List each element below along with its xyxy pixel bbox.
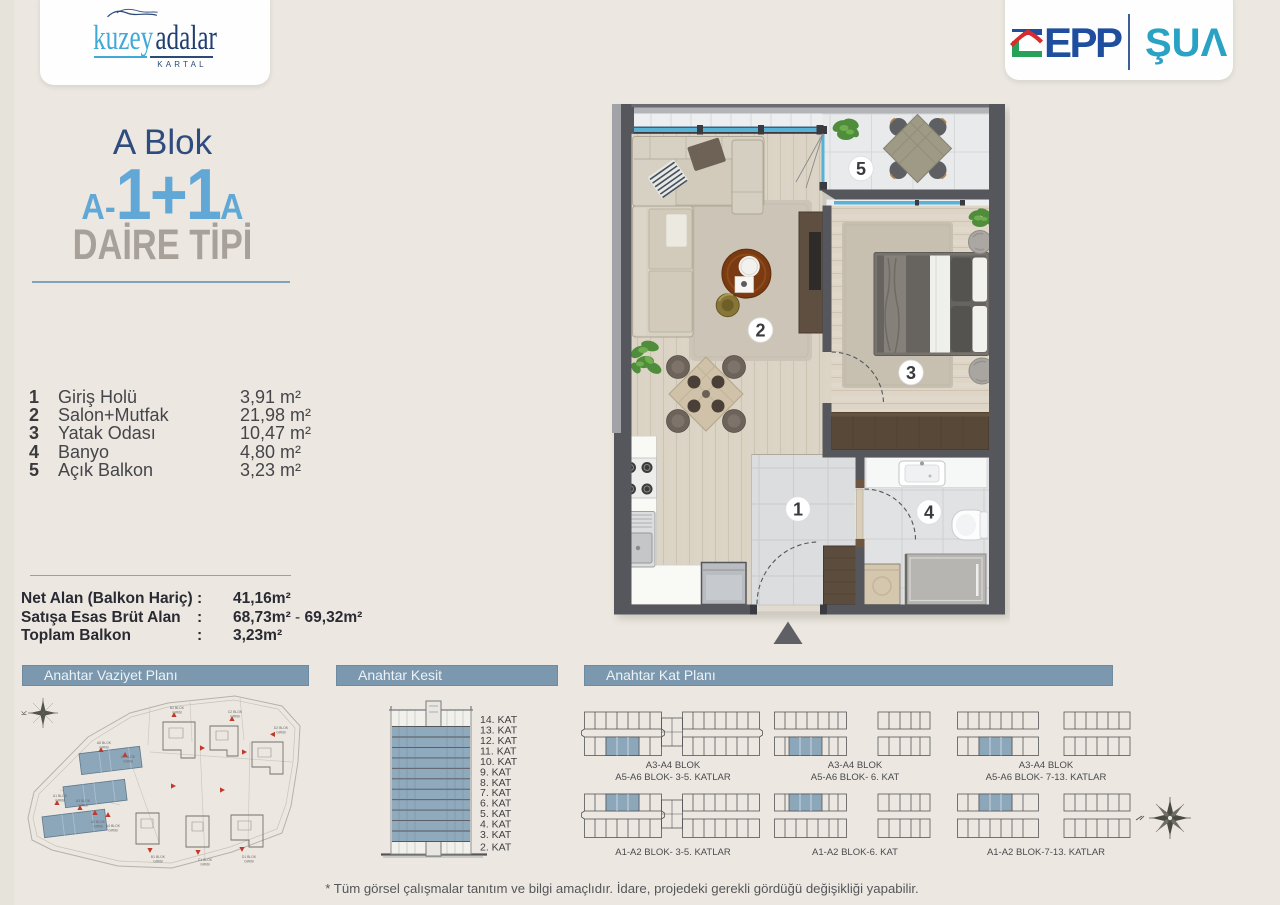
svg-text:A6 BLOK: A6 BLOK [121, 755, 136, 759]
svg-text:K: K [22, 710, 29, 715]
svg-text:GiRiSi: GiRiSi [276, 731, 286, 735]
svg-text:GiRiSi: GiRiSi [99, 746, 109, 750]
svg-text:A3-A4 BLOK: A3-A4 BLOK [828, 760, 883, 771]
svg-text:GiRiSi: GiRiSi [93, 825, 103, 829]
svg-text:GiRiSi: GiRiSi [244, 860, 254, 864]
svg-text:A4 BLOK: A4 BLOK [106, 824, 121, 828]
svg-text:GiRiSi: GiRiSi [153, 860, 163, 864]
svg-text:GiRiSi: GiRiSi [230, 715, 240, 719]
svg-text:4: 4 [924, 503, 934, 523]
svg-text:A3-A4 BLOK: A3-A4 BLOK [1019, 760, 1074, 771]
svg-text:A5-A6 BLOK- 7-13. KATLAR: A5-A6 BLOK- 7-13. KATLAR [986, 772, 1107, 783]
svg-text:GiRiSi: GiRiSi [172, 711, 182, 715]
svg-text:B2 BLOK: B2 BLOK [170, 706, 185, 710]
svg-text:2: 2 [755, 321, 765, 341]
svg-text:A1 BLOK: A1 BLOK [53, 794, 68, 798]
svg-text:B1 BLOK: B1 BLOK [151, 855, 166, 859]
svg-text:A1-A2 BLOK- 3-5. KATLAR: A1-A2 BLOK- 3-5. KATLAR [615, 847, 731, 858]
svg-text:GiRiSi: GiRiSi [108, 829, 118, 833]
svg-text:A5 BLOK: A5 BLOK [97, 741, 112, 745]
svg-text:A5-A6 BLOK- 6. KAT: A5-A6 BLOK- 6. KAT [811, 772, 900, 783]
svg-text:D1 BLOK: D1 BLOK [242, 855, 257, 859]
svg-text:GiRiSi: GiRiSi [78, 804, 88, 808]
svg-text:A1-A2 BLOK-7-13. KATLAR: A1-A2 BLOK-7-13. KATLAR [987, 847, 1105, 858]
svg-text:A3-A4 BLOK: A3-A4 BLOK [646, 760, 701, 771]
svg-text:2. KAT: 2. KAT [480, 841, 512, 853]
svg-text:GiRiSi: GiRiSi [200, 863, 210, 867]
svg-text:C1 BLOK: C1 BLOK [198, 858, 213, 862]
svg-text:3: 3 [906, 363, 916, 383]
svg-text:A3 BLOK: A3 BLOK [76, 799, 91, 803]
svg-text:3. KAT: 3. KAT [480, 829, 512, 841]
svg-text:A5-A6 BLOK- 3-5. KATLAR: A5-A6 BLOK- 3-5. KATLAR [615, 772, 731, 783]
svg-text:GiRiSi: GiRiSi [55, 799, 65, 803]
svg-text:A2 BLOK: A2 BLOK [91, 820, 106, 824]
svg-text:D2 BLOK: D2 BLOK [274, 726, 289, 730]
svg-text:A1-A2 BLOK-6. KAT: A1-A2 BLOK-6. KAT [812, 847, 898, 858]
svg-text:GiRiSi: GiRiSi [123, 760, 133, 764]
svg-text:C2 BLOK: C2 BLOK [228, 710, 243, 714]
svg-text:1: 1 [793, 500, 803, 520]
svg-text:5: 5 [856, 159, 866, 179]
